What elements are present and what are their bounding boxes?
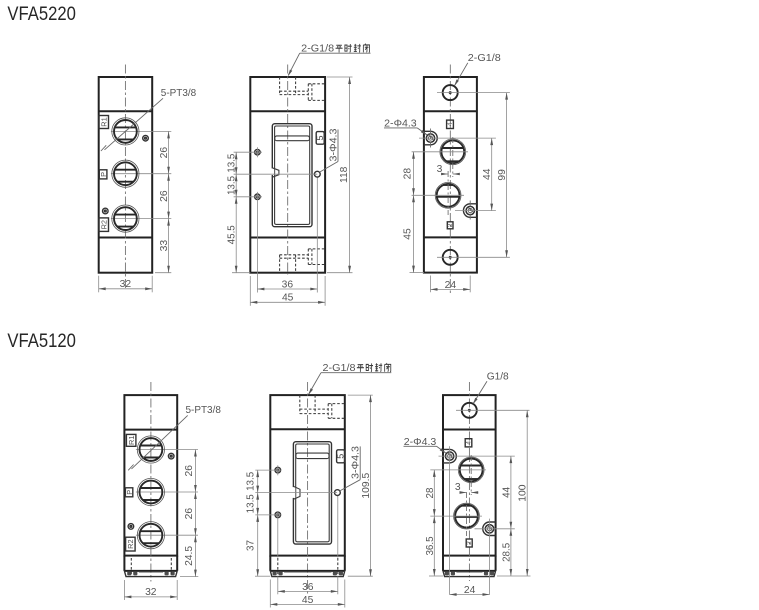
svg-text:5: 5 [335, 454, 345, 459]
svg-text:R1: R1 [127, 436, 136, 445]
svg-text:13.5: 13.5 [227, 153, 238, 173]
svg-text:28.5: 28.5 [501, 542, 512, 562]
svg-text:45.5: 45.5 [227, 225, 238, 245]
svg-text:2: 2 [447, 223, 454, 227]
svg-text:3-Φ4.3: 3-Φ4.3 [351, 445, 362, 479]
svg-text:28: 28 [403, 168, 414, 180]
svg-text:26: 26 [184, 508, 195, 520]
svg-text:37: 37 [246, 540, 257, 551]
svg-text:100: 100 [518, 484, 529, 501]
svg-text:4: 4 [466, 441, 473, 445]
svg-text:13.5: 13.5 [246, 494, 257, 514]
svg-text:R1: R1 [99, 117, 108, 126]
svg-text:33: 33 [159, 240, 170, 252]
svg-text:4: 4 [447, 122, 454, 126]
svg-text:44: 44 [482, 168, 493, 180]
svg-text:24.5: 24.5 [184, 546, 195, 566]
svg-text:2: 2 [466, 541, 473, 545]
svg-text:44: 44 [501, 486, 512, 497]
svg-text:45: 45 [282, 293, 294, 304]
svg-text:3-Φ4.3: 3-Φ4.3 [328, 128, 339, 162]
svg-text:3: 3 [455, 482, 461, 493]
svg-text:13.5: 13.5 [246, 471, 257, 491]
svg-text:5-PT3/8: 5-PT3/8 [186, 405, 222, 416]
svg-text:26: 26 [159, 190, 170, 202]
svg-text:36: 36 [282, 279, 294, 290]
svg-text:99: 99 [497, 169, 508, 181]
svg-text:36: 36 [302, 582, 314, 593]
svg-text:2-G1/8: 2-G1/8 [468, 53, 501, 64]
svg-text:P: P [125, 490, 134, 495]
svg-text:VFA5220: VFA5220 [7, 4, 76, 25]
svg-text:P: P [99, 172, 108, 177]
svg-text:5-PT3/8: 5-PT3/8 [161, 88, 197, 99]
svg-text:28: 28 [425, 487, 436, 498]
svg-text:VFA5120: VFA5120 [7, 331, 76, 352]
svg-text:32: 32 [120, 279, 132, 290]
svg-text:13.5: 13.5 [227, 175, 238, 195]
svg-text:G1/8: G1/8 [487, 372, 509, 383]
svg-text:45: 45 [403, 228, 414, 240]
svg-text:118: 118 [339, 166, 350, 183]
svg-text:109.5: 109.5 [361, 473, 372, 499]
svg-text:36.5: 36.5 [425, 536, 436, 556]
svg-text:R2: R2 [126, 539, 135, 548]
svg-text:26: 26 [159, 147, 170, 159]
svg-text:3: 3 [437, 164, 443, 175]
svg-text:R2: R2 [99, 220, 108, 229]
svg-text:5: 5 [315, 135, 325, 140]
svg-text:45: 45 [302, 595, 314, 606]
svg-text:32: 32 [145, 587, 157, 598]
svg-text:24: 24 [445, 280, 457, 291]
svg-text:24: 24 [464, 585, 476, 596]
svg-text:26: 26 [184, 465, 195, 477]
